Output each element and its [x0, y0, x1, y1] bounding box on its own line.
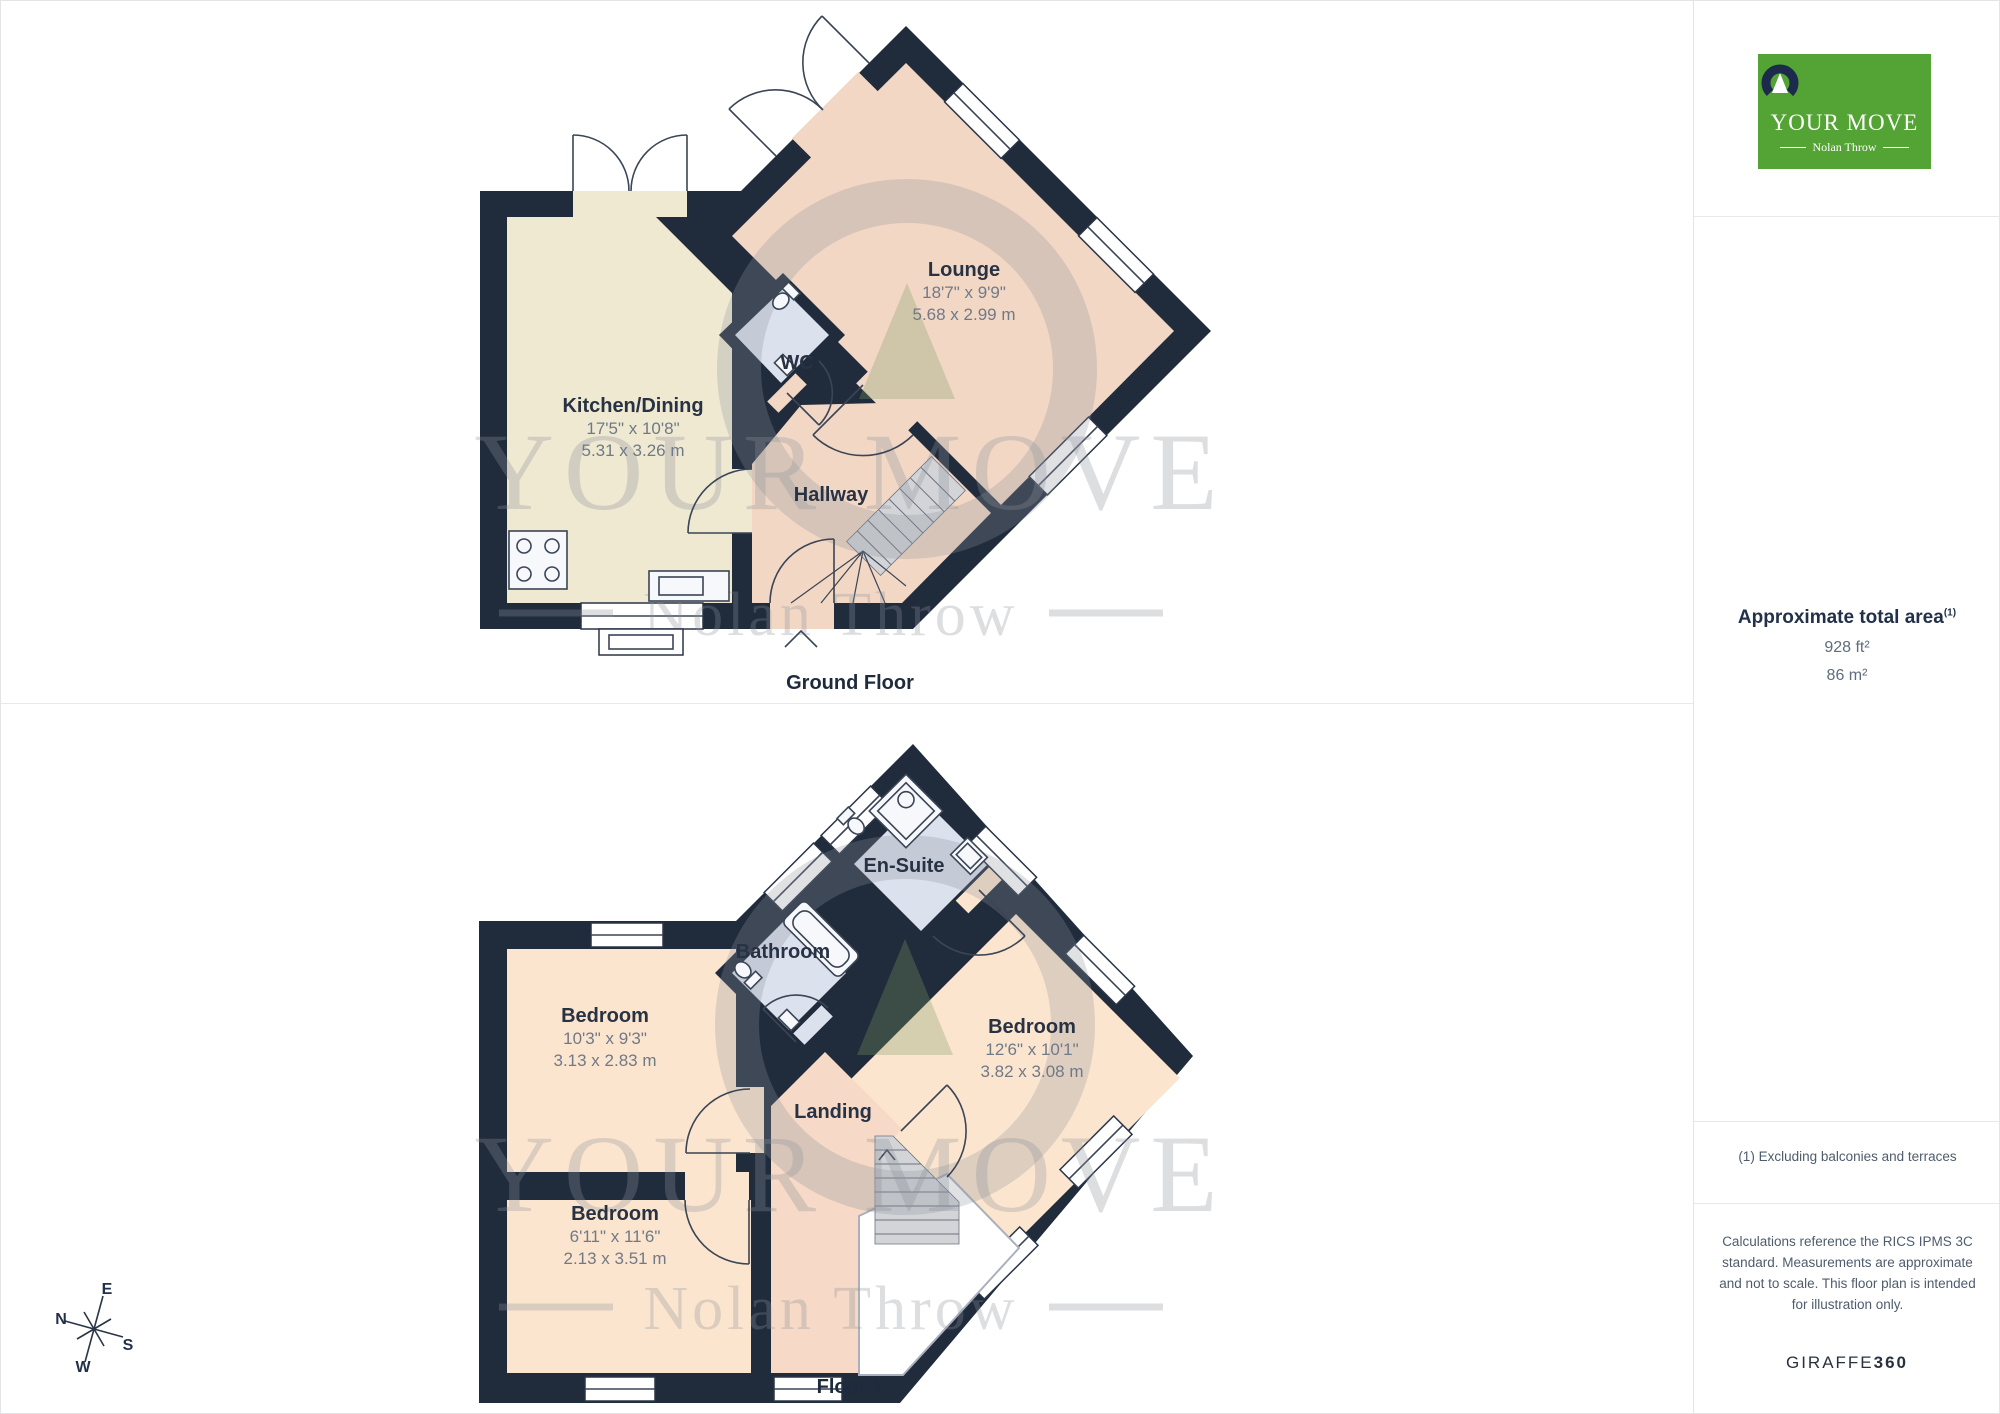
room-dim-metric: 5.68 x 2.99 m	[912, 305, 1015, 324]
floor-1-section: YOUR MOVE Nolan Throw	[1, 703, 1693, 1414]
window	[585, 1377, 655, 1401]
room-dim-imperial: 10'3" x 9'3"	[563, 1029, 647, 1048]
room-label-wc: WC	[780, 352, 813, 374]
logo-brand-text: YOUR MOVE	[1758, 110, 1931, 136]
floor-1-label: Floor 1	[817, 1376, 884, 1398]
kitchen-patio-door-opening	[573, 191, 687, 217]
logo-sub-row: Nolan Throw	[1758, 140, 1931, 155]
room-dim-imperial: 17'5" x 10'8"	[586, 419, 679, 438]
exclusion-footnote: (1) Excluding balconies and terraces	[1704, 1149, 1991, 1164]
info-sidebar: YOUR MOVE Nolan Throw Approximate total …	[1693, 1, 2000, 1413]
room-dim-metric: 5.31 x 3.26 m	[581, 441, 684, 460]
compass-n: N	[55, 1311, 67, 1328]
floorplan-area: YOUR MOVE Nolan Throw	[1, 1, 1693, 1414]
watermark-sub: Nolan Throw	[643, 1275, 1018, 1343]
total-area-block: Approximate total area(1) 928 ft² 86 m²	[1694, 607, 2000, 685]
kitchen-sink-icon	[649, 571, 729, 601]
compass-e: E	[102, 1281, 113, 1298]
room-label-hallway: Hallway	[794, 484, 869, 506]
compass-s: S	[123, 1337, 134, 1354]
room-label-ensuite: En-Suite	[863, 855, 944, 877]
room-dim-metric: 3.82 x 3.08 m	[980, 1062, 1083, 1081]
logo-mark-icon	[1758, 62, 1802, 108]
room-label-bedroom1: Bedroom	[561, 1005, 649, 1027]
agency-logo: YOUR MOVE Nolan Throw	[1758, 54, 1931, 169]
ground-floor-plan: YOUR MOVE Nolan Throw	[1, 1, 1693, 703]
room-label-kitchen: Kitchen/Dining	[562, 395, 703, 417]
giraffe360-brand: GIRAFFE360	[1694, 1353, 2000, 1373]
compass-w: W	[75, 1359, 91, 1376]
ground-floor-section: YOUR MOVE Nolan Throw	[1, 1, 1693, 703]
total-area-heading-text: Approximate total area	[1738, 607, 1944, 628]
giraffe-360-text: 360	[1874, 1353, 1908, 1372]
room-dim-metric: 2.13 x 3.51 m	[563, 1249, 666, 1268]
total-area-note-ref: (1)	[1944, 608, 1956, 619]
floorplan-page: YOUR MOVE Nolan Throw	[0, 0, 2000, 1414]
total-area-imperial: 928 ft²	[1694, 639, 2000, 657]
room-label-bedroom2: Bedroom	[988, 1016, 1076, 1038]
bay-step	[599, 629, 683, 655]
sidebar-divider	[1694, 1203, 2000, 1204]
logo-rule	[1883, 147, 1909, 148]
logo-sub-text: Nolan Throw	[1812, 140, 1876, 155]
sidebar-divider	[1694, 216, 2000, 217]
room-label-bedroom3: Bedroom	[571, 1203, 659, 1225]
disclaimer-text: Calculations reference the RICS IPMS 3C …	[1718, 1231, 1977, 1315]
window	[591, 923, 663, 947]
ground-floor-label: Ground Floor	[786, 672, 914, 694]
hob-icon	[509, 531, 567, 589]
room-dim-imperial: 6'11" x 11'6"	[570, 1227, 661, 1246]
giraffe-text: GIRAFFE	[1786, 1353, 1874, 1372]
room-dim-imperial: 18'7" x 9'9"	[922, 283, 1006, 302]
floor-1-plan: YOUR MOVE Nolan Throw	[1, 704, 1693, 1414]
logo-rule	[1780, 147, 1806, 148]
sidebar-divider	[1694, 1121, 2000, 1122]
room-label-landing: Landing	[794, 1101, 872, 1123]
total-area-heading: Approximate total area(1)	[1694, 607, 2000, 629]
compass-rose-icon: N E S W	[55, 1281, 133, 1376]
room-dim-metric: 3.13 x 2.83 m	[553, 1051, 656, 1070]
total-area-metric: 86 m²	[1694, 667, 2000, 685]
room-dim-imperial: 12'6" x 10'1"	[985, 1040, 1078, 1059]
room-label-bathroom: Bathroom	[736, 941, 830, 963]
room-label-lounge: Lounge	[928, 259, 1000, 281]
